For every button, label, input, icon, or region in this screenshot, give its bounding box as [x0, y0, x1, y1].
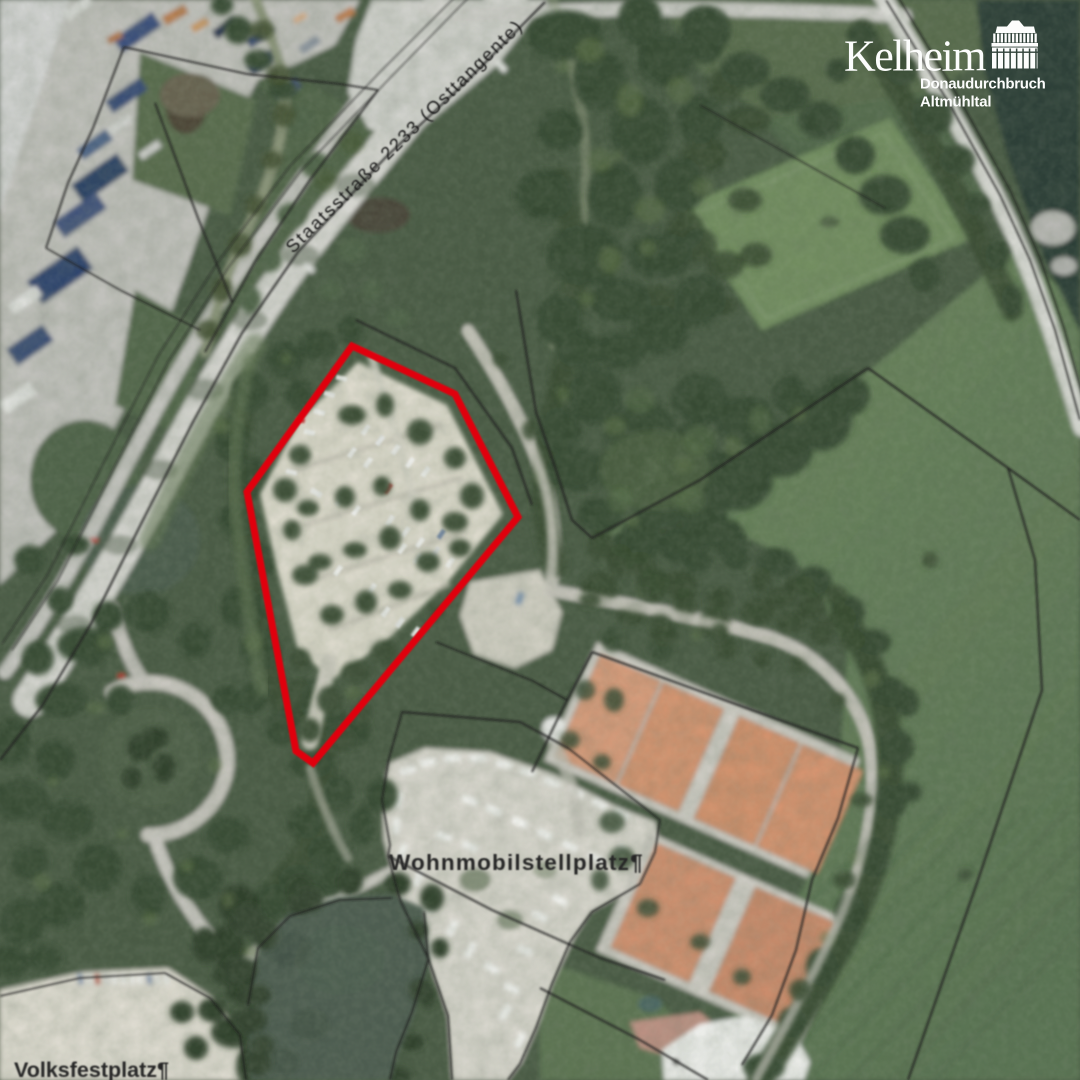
svg-text:Altmühltal: Altmühltal [920, 94, 991, 111]
svg-text:Wohnmobilstellplatz¶: Wohnmobilstellplatz¶ [389, 850, 644, 875]
svg-text:Donaudurchbruch: Donaudurchbruch [920, 76, 1046, 93]
svg-text:Volksfestplatz¶: Volksfestplatz¶ [14, 1058, 169, 1080]
svg-text:Kelheim: Kelheim [844, 32, 986, 81]
